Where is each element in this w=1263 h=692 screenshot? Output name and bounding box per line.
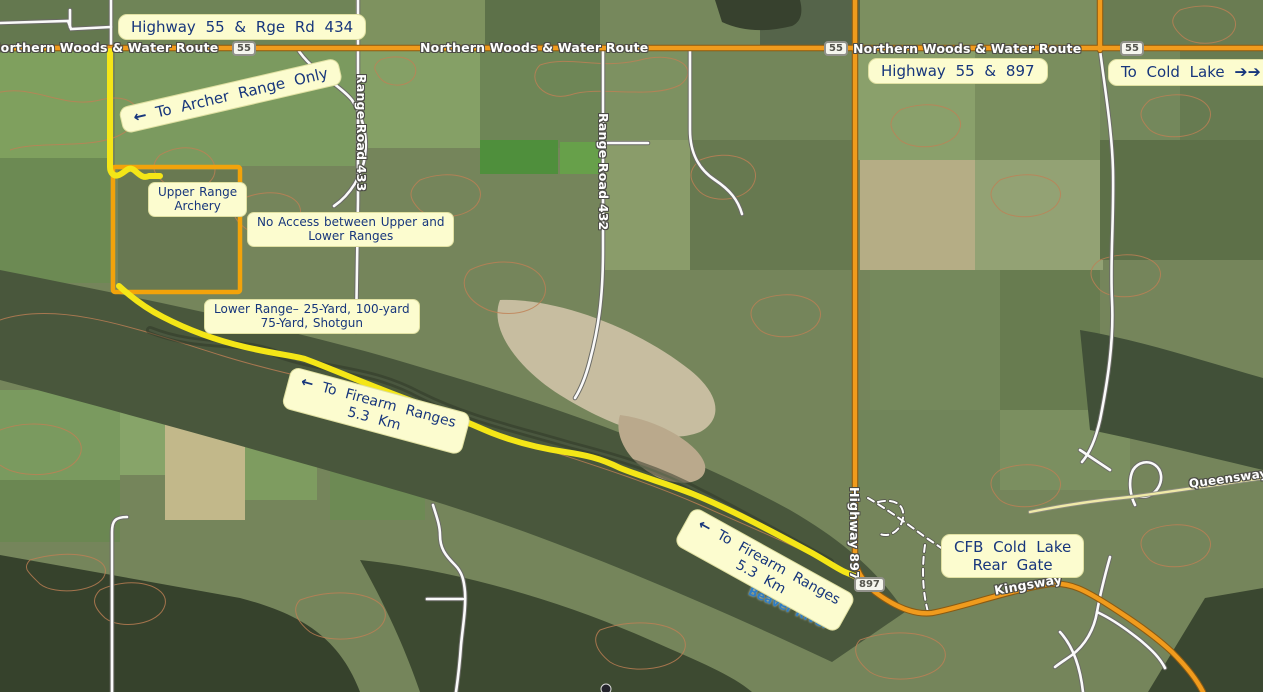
road-label-range-road-433: Range Road 433 [354, 74, 369, 192]
road-label-highway-897: Highway 897 [847, 487, 862, 580]
callout-line1: Upper Range [158, 185, 237, 199]
road-label-range-road-432: Range Road 432 [596, 113, 611, 231]
callout-text: Highway 55 & 897 [881, 62, 1035, 80]
left-arrow-icon: ← [131, 105, 148, 126]
callout-line2: Rear Gate [973, 556, 1053, 574]
callout-to-cold-lake: To Cold Lake ➔➔ [1108, 59, 1263, 86]
callout-highway-55-rge-rd-434: Highway 55 & Rge Rd 434 [118, 14, 366, 40]
callout-no-access: No Access between Upper and Lower Ranges [247, 212, 454, 247]
callout-lower-range: Lower Range– 25-Yard, 100-yard 75-Yard, … [204, 299, 420, 334]
callout-line2: Archery [174, 199, 221, 213]
callout-line2: Lower Ranges [308, 229, 393, 243]
road-label-northern-woods-3: Northern Woods & Water Route [853, 41, 1081, 56]
callout-text: To Cold Lake [1121, 63, 1225, 81]
callout-line1: Lower Range– 25-Yard, 100-yard [214, 302, 410, 316]
left-arrow-icon: ← [695, 516, 714, 537]
map-canvas: Northern Woods & Water Route Northern Wo… [0, 0, 1263, 692]
callout-upper-range-archery: Upper Range Archery [148, 182, 247, 217]
highway-shield-55-mid: 55 [824, 41, 848, 56]
bottom-edge-marker [601, 684, 611, 692]
callout-highway-55-897: Highway 55 & 897 [868, 58, 1048, 84]
callout-line2: 75-Yard, Shotgun [261, 316, 363, 330]
highway-shield-55-right: 55 [1120, 41, 1144, 56]
highway-shield-55-left: 55 [232, 41, 256, 56]
highway-shield-897: 897 [854, 577, 885, 592]
road-label-northern-woods-1: Northern Woods & Water Route [0, 40, 218, 55]
callout-text: Highway 55 & Rge Rd 434 [131, 18, 353, 36]
right-arrows-icon: ➔➔ [1234, 62, 1260, 81]
callout-line1: No Access between Upper and [257, 215, 444, 229]
callout-cfb-cold-lake-rear-gate: CFB Cold Lake Rear Gate [941, 534, 1084, 578]
road-label-northern-woods-2: Northern Woods & Water Route [420, 40, 648, 55]
left-arrow-icon: ← [299, 373, 315, 393]
callout-line1: CFB Cold Lake [954, 538, 1071, 556]
